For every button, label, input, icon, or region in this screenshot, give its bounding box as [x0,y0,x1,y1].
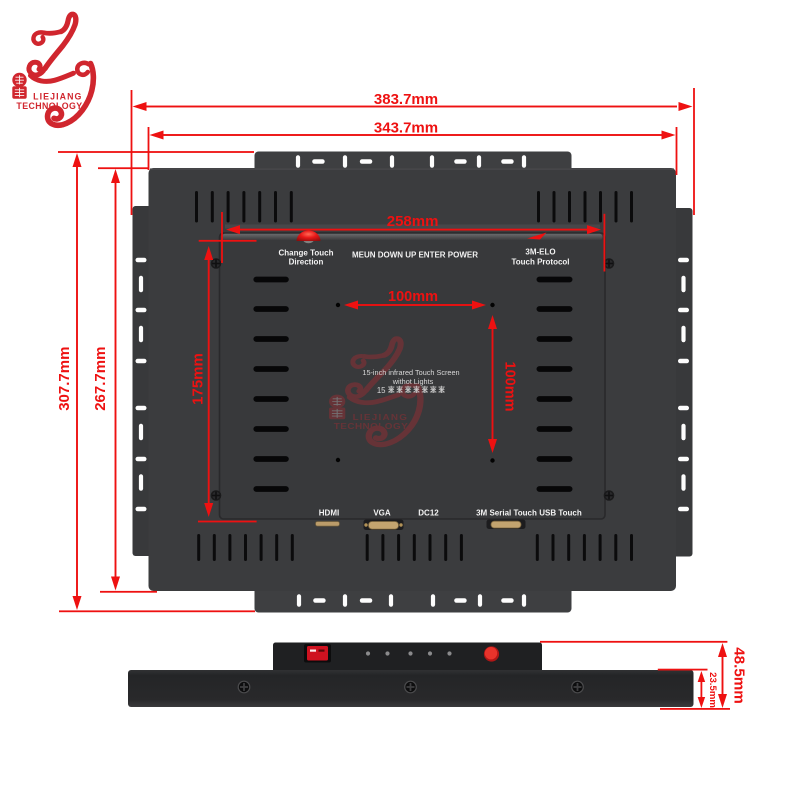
svg-text:HDMI: HDMI [319,509,339,518]
svg-text:withot Lights: withot Lights [392,377,434,386]
svg-text:DC12: DC12 [418,509,439,518]
svg-text:267.7mm: 267.7mm [92,347,109,411]
svg-text:383.7mm: 383.7mm [374,91,438,108]
svg-text:15-inch infrared Touch Screen: 15-inch infrared Touch Screen [362,368,459,377]
svg-text:100mm: 100mm [502,362,518,412]
svg-text:307.7mm: 307.7mm [56,347,73,411]
svg-text:48.5mm: 48.5mm [731,647,748,704]
svg-text:175mm: 175mm [190,353,207,405]
svg-text:15: 15 [377,386,386,395]
svg-text:258mm: 258mm [387,213,439,230]
svg-text:USB Touch: USB Touch [539,509,582,518]
svg-text:MEUN DOWN UP ENTER POWER: MEUN DOWN UP ENTER POWER [352,250,478,259]
svg-text:343.7mm: 343.7mm [374,120,438,137]
svg-text:23.5mm: 23.5mm [707,672,718,708]
svg-text:VGA: VGA [373,509,391,518]
svg-text:3M Serial Touch: 3M Serial Touch [476,509,537,518]
svg-text:100mm: 100mm [388,289,438,305]
